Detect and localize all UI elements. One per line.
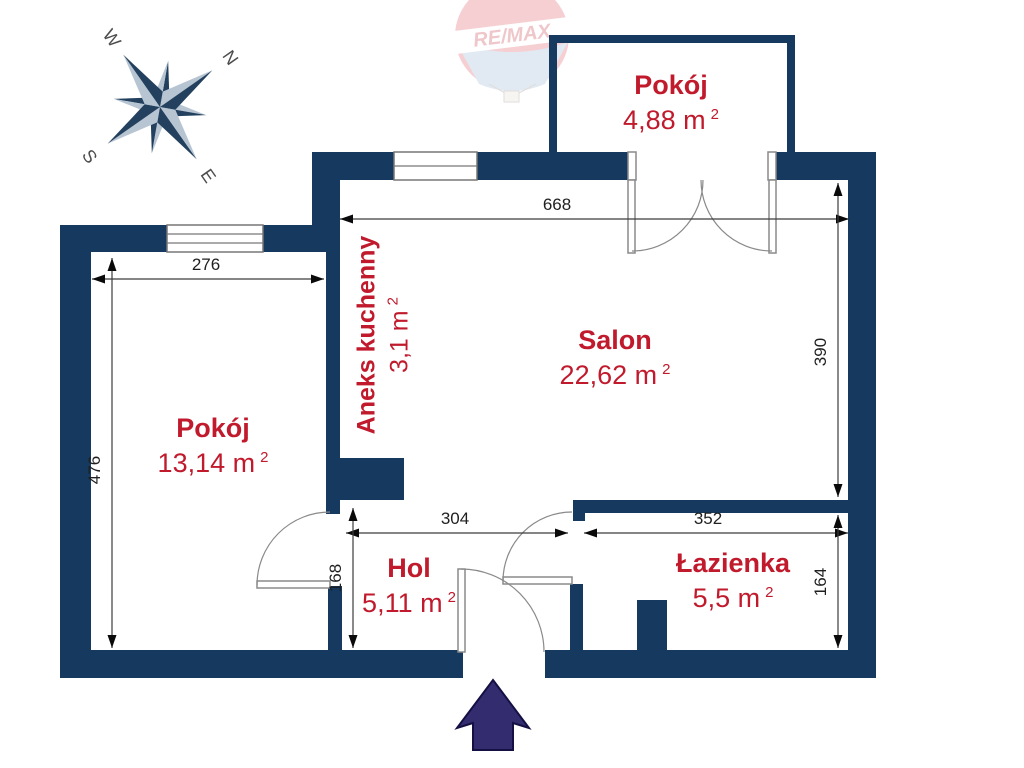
floor-plan: RE/MAX N E S: [0, 0, 1024, 768]
wall-left: [60, 225, 91, 678]
wall-right: [848, 152, 876, 678]
dimension-lazienka-height: 164: [811, 515, 843, 648]
room-area: 3,1 m2: [383, 236, 416, 435]
french-door-left: [628, 152, 703, 253]
entrance-arrow-icon: [457, 680, 529, 750]
room-area: 22,62 m2: [560, 358, 671, 393]
room-area: 5,11 m2: [362, 586, 456, 621]
room-name: Salon: [560, 323, 671, 358]
door-swing-arc: [503, 512, 572, 581]
room-label-pokoj-large: Pokój 13,14 m2: [158, 411, 269, 481]
dimension-value: 668: [543, 195, 571, 214]
dimension-value: 352: [694, 509, 722, 528]
window-pokoj: [167, 225, 263, 252]
wall-upper-room-left: [549, 35, 557, 152]
wall-salon-top-c: [770, 152, 848, 180]
balloon-basket: [504, 91, 519, 102]
room-label-aneks-kuchenny: Aneks kuchenny 3,1 m2: [351, 236, 416, 435]
wall-kitchen-stub: [326, 458, 404, 500]
wall-bottom-left: [60, 650, 463, 678]
room-name: Pokój: [158, 411, 269, 446]
window-salon: [394, 152, 477, 180]
wall-lazienka-left: [570, 584, 583, 650]
wall-upper-room-right: [787, 35, 795, 152]
room-name: Aneks kuchenny: [351, 236, 384, 435]
dimension-lazienka-width: 352: [584, 509, 848, 538]
door-lazienka: [503, 512, 572, 584]
dimension-value: 276: [192, 255, 220, 274]
compass-s-label: S: [78, 146, 101, 167]
room-label-lazienka: Łazienka 5,5 m2: [676, 546, 790, 616]
wall-corner-block: [312, 152, 340, 252]
room-label-hol: Hol 5,11 m2: [362, 551, 456, 621]
wall-divider-upper: [326, 252, 340, 462]
compass-e-label: E: [197, 165, 220, 186]
compass-n-label: N: [219, 47, 243, 69]
room-name: Pokój: [623, 68, 719, 103]
door-pokoj: [257, 512, 330, 588]
wall-upper-room-top: [549, 35, 795, 43]
wall-divider-lower: [328, 586, 342, 650]
dimension-value: 476: [85, 456, 104, 484]
room-name: Hol: [362, 551, 456, 586]
compass-w-label: W: [99, 25, 125, 50]
door-swing-arc: [257, 512, 330, 585]
room-area: 13,14 m2: [158, 446, 269, 481]
french-door-right: [701, 152, 776, 253]
wall-salon-top-b: [477, 152, 629, 180]
wall-bath-stub: [637, 600, 667, 650]
door-swing-arc: [632, 180, 703, 251]
remax-balloon-logo-icon: RE/MAX: [447, 0, 577, 102]
room-name: Łazienka: [676, 546, 790, 581]
floor-plan-drawing: RE/MAX N E S: [0, 0, 1024, 768]
wall-lazienka-step: [573, 513, 585, 521]
dimension-salon-height: 390: [811, 183, 843, 497]
room-label-salon: Salon 22,62 m2: [560, 323, 671, 393]
compass-rose-icon: N E S W: [28, 0, 290, 236]
room-area: 5,5 m2: [676, 581, 790, 616]
wall-bottom-right: [545, 650, 876, 678]
dimension-value: 168: [326, 564, 345, 592]
dimension-value: 164: [811, 568, 830, 596]
room-label-pokoj-small: Pokój 4,88 m2: [623, 68, 719, 138]
dimension-value: 390: [811, 338, 830, 366]
dimension-value: 304: [441, 509, 469, 528]
door-swing-arc: [701, 180, 772, 251]
room-area: 4,88 m2: [623, 103, 719, 138]
dimension-pokoj-width: 276: [92, 255, 324, 284]
